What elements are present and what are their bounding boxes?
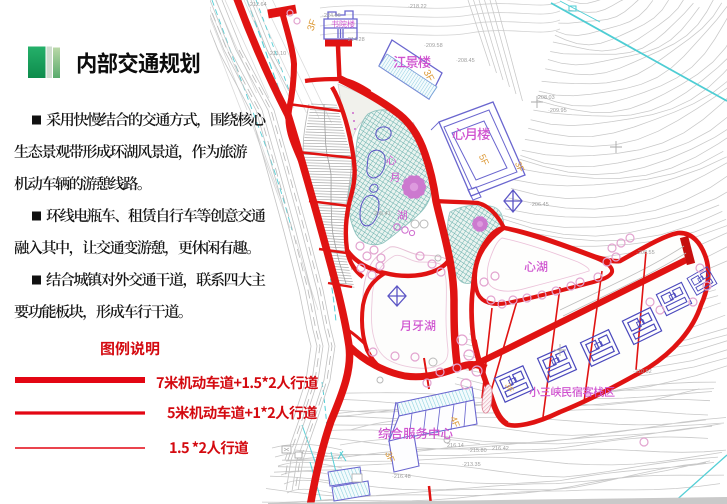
svg-text:·210.52: ·210.52 [633,369,652,375]
svg-text:·213.35: ·213.35 [462,462,481,468]
svg-text:·216.48: ·216.48 [392,474,411,480]
svg-text:·209.58: ·209.58 [424,43,443,49]
svg-text:·208.03: ·208.03 [536,95,555,101]
svg-text:·208.55: ·208.55 [636,250,655,256]
svg-text:·208.45: ·208.45 [456,58,475,64]
svg-text:·214.28: ·214.28 [346,37,365,43]
svg-text:216.14: 216.14 [447,443,464,449]
svg-text:·215.80: ·215.80 [468,448,487,454]
svg-text:·212.64: ·212.64 [248,2,267,8]
svg-text:216.42: 216.42 [492,446,509,452]
svg-text:·205.41: ·205.41 [372,211,391,217]
svg-text:·211.10: ·211.10 [268,51,286,57]
svg-text:·224.66: ·224.66 [322,13,341,19]
svg-text:·218.22: ·218.22 [408,4,427,10]
svg-text:·206.45: ·206.45 [530,202,549,208]
svg-text:·209.95: ·209.95 [548,108,567,114]
